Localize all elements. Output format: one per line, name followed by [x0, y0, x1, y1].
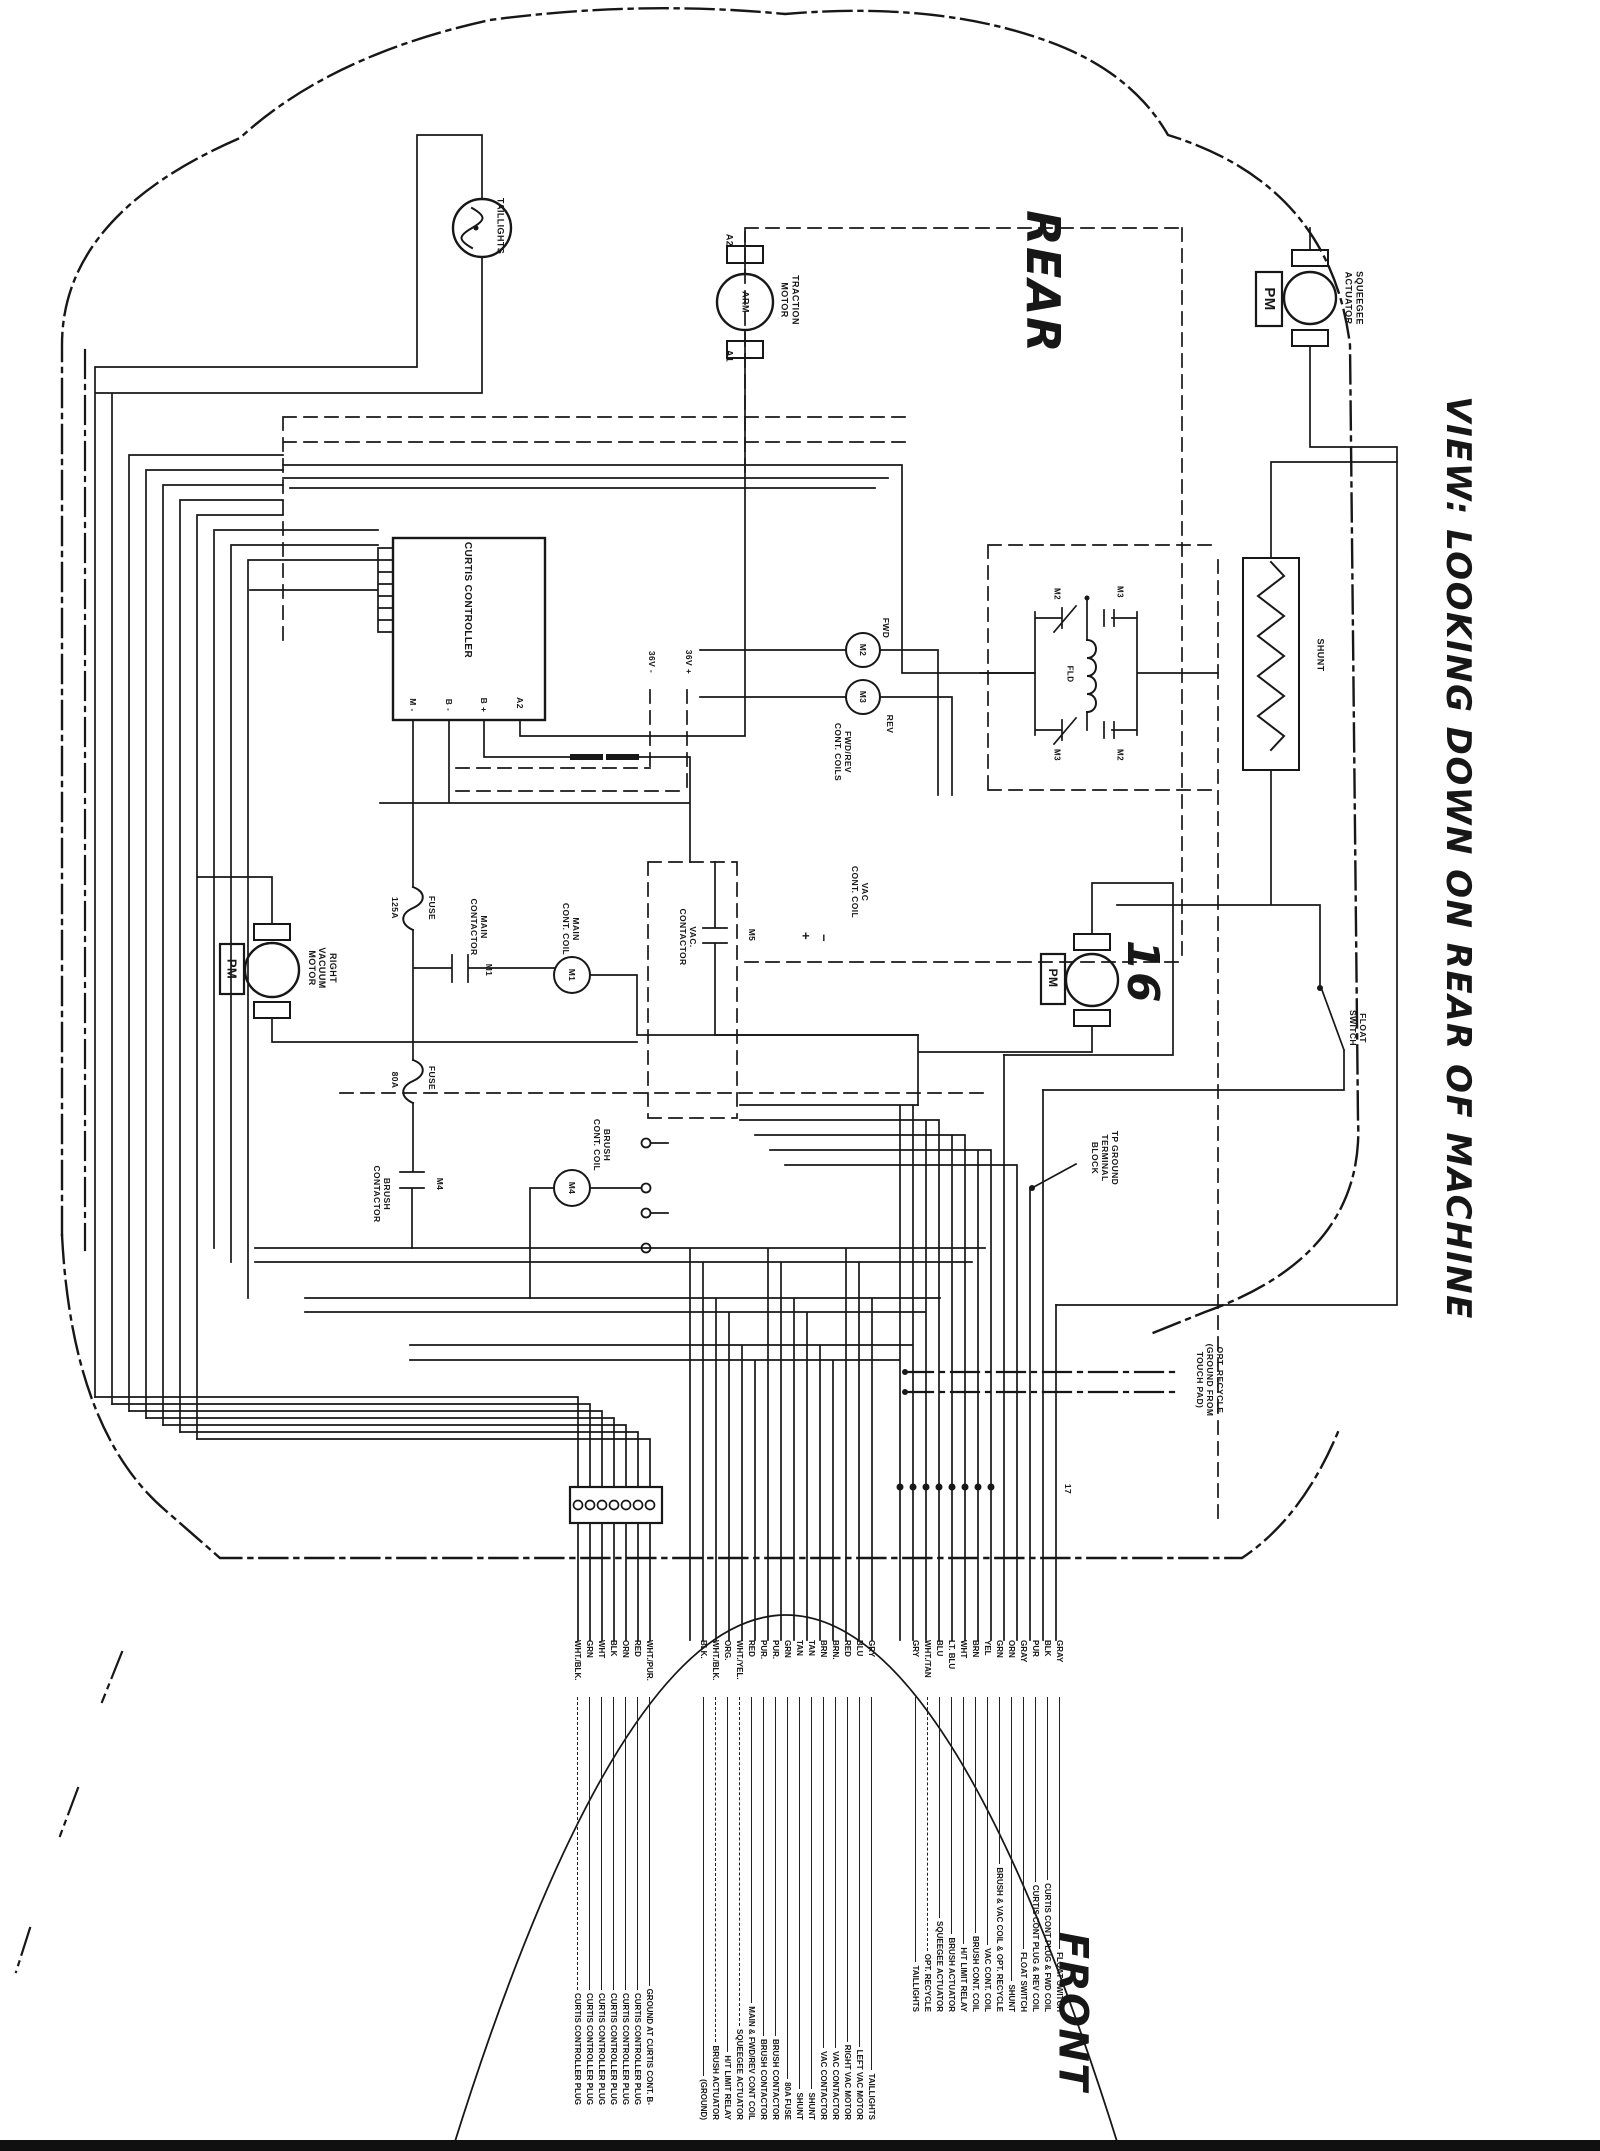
wire-label-row: BLKCURTIS CONT PLUG & FWD COIL	[1042, 1640, 1054, 2012]
wire-target: GROUND AT CURTIS CONT. B-	[646, 1989, 655, 2105]
wire-target: VAC CONT. COIL	[984, 1948, 993, 2012]
wire-label-row: BRN.VAC CONTACTOR	[830, 1640, 842, 2120]
label-m1-contact: M1	[484, 964, 494, 977]
wire-target: BRUSH ACTUATOR	[948, 1937, 957, 2012]
wire-color: GRN	[784, 1640, 793, 1694]
wire-leader-line	[788, 1697, 789, 2079]
wire-target: H/T LIMIT RELAY	[960, 1947, 969, 2012]
splice-dots	[897, 1484, 995, 1491]
wire-color: ORN	[1008, 1640, 1017, 1694]
wire-color: WHT./BLK.	[574, 1640, 583, 1694]
wire-leader-line	[836, 1697, 837, 2048]
label-m2-coil: M2	[858, 644, 868, 657]
label-right-vacuum-motor: RIGHT VACUUM MOTOR	[306, 947, 338, 988]
wire-leader-line	[1048, 1697, 1049, 1880]
shunt-resistor	[1258, 562, 1284, 750]
label-m1-coil: M1	[567, 969, 577, 982]
wire-label-row: ORNCURTIS CONTROLLER PLUG	[620, 1640, 632, 2105]
wire-target: CURTIS CONTROLLER PLUG	[634, 1993, 643, 2105]
label-fuse80: FUSE	[427, 1066, 437, 1090]
label-squeegee-actuator: SQUEEGEE ACTUATOR	[1343, 271, 1364, 325]
wire-target: BRUSH CONT. COIL	[972, 1936, 981, 2012]
label-m3-contact-bl: M3	[1052, 749, 1061, 761]
wire-target: FLOAT SWITCH	[1020, 1952, 1029, 2012]
wire-label-list-curtis-plug: WHT./PUR.GROUND AT CURTIS CONT. B-REDCUR…	[572, 1640, 656, 2105]
taillight-filament	[462, 208, 483, 248]
wire-color: WHT./PUR.	[646, 1640, 655, 1694]
wiring-diagram-page: TAILLIGHTSA2ARMA1TRACTION MOTORREARPMSQU…	[0, 0, 1600, 2151]
wire-label-row: GRNCURTIS CONTROLLER PLUG	[584, 1640, 596, 2105]
wire-color: PUR	[1032, 1640, 1041, 1694]
wire-color: BLU	[856, 1640, 865, 1694]
wire-color: RED	[748, 1640, 757, 1694]
dashed-enclosures	[283, 228, 1218, 1525]
wire-color: ORN	[622, 1640, 631, 1694]
wire-label-row: PURCURTIS CONT PLUG & REV COIL	[1030, 1640, 1042, 2012]
wire-color: GRAY	[1020, 1640, 1029, 1694]
wire-leader-line	[964, 1697, 965, 1944]
wire-label-row: GRYTAILLIGHTS	[910, 1640, 922, 2012]
wire-leader-line	[716, 1697, 717, 2042]
label-squeegee-pm: PM	[1260, 287, 1278, 310]
wire-leader-line	[800, 1697, 801, 2089]
wire-color: PUR.	[772, 1640, 781, 1694]
wire-label-row: BLK.(GROUND)	[698, 1640, 710, 2120]
wire-label-row: TANSHUNT	[794, 1640, 806, 2120]
machine-outline-top	[62, 8, 1358, 1335]
label-float-switch: FLOAT SWITCH	[1348, 1010, 1368, 1046]
wire-target: SHUNT	[796, 2092, 805, 2120]
squeegee-actuator-motor	[1284, 272, 1336, 324]
label-field-coil: FLD	[1065, 666, 1074, 683]
wire-target: CURTIS CONTROLLER PLUG	[622, 1993, 631, 2105]
wire-color: GRAY	[1056, 1640, 1065, 1694]
wire-leader-line	[952, 1697, 953, 1934]
wire-leader-line	[764, 1697, 765, 2036]
wire-leader-line	[860, 1697, 861, 2047]
wire-leader-line	[1000, 1697, 1001, 1864]
wires-right-side	[530, 462, 1397, 1298]
wire-leader-line	[614, 1697, 615, 1990]
wire-leader-line	[916, 1697, 917, 1962]
wire-target: RIGHT VAC MOTOR	[844, 2045, 853, 2120]
label-m3-coil: M3	[858, 691, 868, 704]
wire-leader-line	[812, 1697, 813, 2089]
wire-leader-line	[704, 1697, 705, 2076]
wire-label-row: BLUSQUEEGEE ACTUATOR	[934, 1640, 946, 2012]
wire-color: WHT./YEL.	[736, 1640, 745, 1694]
wire-color: GRN	[996, 1640, 1005, 1694]
wire-label-row: BRNVAC CONTACTOR	[818, 1640, 830, 2120]
wire-label-row: GRAYFLOAT SWITCH	[1054, 1640, 1066, 2012]
label-m2-contact-tl: M2	[1052, 588, 1061, 600]
wire-color: RED	[634, 1640, 643, 1694]
label-traction-a1: A1	[724, 350, 735, 362]
wire-leader-line	[872, 1697, 873, 2070]
wire-label-row: GRNBRUSH & VAC COIL & OPT. RECYCLE	[994, 1640, 1006, 2012]
label-m2-contact-br: M2	[1115, 749, 1124, 761]
wire-target: LEFT VAC MOTOR	[856, 2050, 865, 2120]
wire-target: TAILLIGHTS	[868, 2073, 877, 2120]
wire-leader-line	[626, 1697, 627, 1990]
label-m4-contact: M4	[435, 1178, 445, 1191]
wire-target: BRUSH ACTUATOR	[712, 2045, 721, 2120]
label-traction-motor: TRACTION MOTOR	[779, 275, 800, 325]
wire-leader-line	[752, 1697, 753, 2003]
label-plus-mark: +	[798, 932, 813, 940]
wire-label-row: WHT./BLK.CURTIS CONTROLLER PLUG	[572, 1640, 584, 2105]
label-shunt: SHUNT	[1315, 639, 1326, 672]
wire-label-row: ORG.H/T LIMIT RELAY	[722, 1640, 734, 2120]
wire-target: CURTIS CONT PLUG & FWD COIL	[1044, 1883, 1053, 2012]
wire-color: WHT	[598, 1640, 607, 1694]
wire-label-row: WHT./YEL.SQUEEGEE ACTUATOR	[734, 1640, 746, 2120]
label-fwd: FWD	[881, 618, 891, 639]
fuse-80a-symbol	[403, 1060, 423, 1103]
wire-color: BLK.	[700, 1640, 709, 1694]
wire-color: GRY	[868, 1640, 877, 1694]
fuse-125a-symbol	[403, 887, 423, 930]
label-aux-neg: 36V -	[647, 651, 657, 673]
wire-label-row: REDRIGHT VAC MOTOR	[842, 1640, 854, 2120]
label-term-a2: A2	[515, 697, 525, 709]
wire-target: CURTIS CONT PLUG & REV COIL	[1032, 1885, 1041, 2012]
wire-color: BRN	[972, 1640, 981, 1694]
wire-target: BRUSH CONTACTOR	[760, 2039, 769, 2120]
wire-leader-line	[976, 1697, 977, 1933]
wire-target: 80A FUSE	[784, 2082, 793, 2120]
label-curtis-controller: CURTIS CONTROLLER	[461, 542, 473, 658]
scan-edge-bar	[0, 2140, 1600, 2151]
wire-label-row: GRAYFLOAT SWITCH	[1018, 1640, 1030, 2012]
wire-target: CURTIS CONTROLLER PLUG	[598, 1993, 607, 2105]
wire-label-row: WHT./TANOPT. RECYCLE	[922, 1640, 934, 2012]
wire-label-list-component-bundle: GRYTAILLIGHTSBLULEFT VAC MOTORREDRIGHT V…	[698, 1640, 878, 2120]
wire-color: WHT./TAN	[924, 1640, 933, 1694]
label-main-cont-coil: MAIN CONT. COIL	[561, 903, 581, 955]
wire-label-row: REDMAIN & FWD/REV CONT COIL	[746, 1640, 758, 2120]
shunt-box	[1243, 558, 1299, 770]
wire-leader-line	[940, 1697, 941, 1918]
label-term-b-plus: B +	[479, 698, 489, 713]
label-traction-arm: ARM	[740, 291, 751, 313]
wire-target: CURTIS CONTROLLER PLUG	[586, 1993, 595, 2105]
wire-color: LT. BLU	[948, 1640, 957, 1694]
wire-target: SQUEEGEE ACTUATOR	[736, 2029, 745, 2120]
wire-color: GRN	[586, 1640, 595, 1694]
label-vac-cont-coil: VAC CONT. COIL	[850, 866, 870, 918]
wire-target: VAC CONTACTOR	[832, 2051, 841, 2120]
wire-label-list-accessory-bundle: GRAYFLOAT SWITCHBLKCURTIS CONT PLUG & FW…	[910, 1640, 1066, 2012]
label-handwritten-16: 16	[1116, 940, 1168, 1004]
wire-label-row: LT. BLUBRUSH ACTUATOR	[946, 1640, 958, 2012]
wire-color: BLK	[610, 1640, 619, 1694]
label-pm-left-vac: PM	[1046, 969, 1060, 988]
wire-target: H/T LIMIT RELAY	[724, 2055, 733, 2120]
wire-label-row: WHTCURTIS CONTROLLER PLUG	[596, 1640, 608, 2105]
wire-target: CURTIS CONTROLLER PLUG	[610, 1993, 619, 2105]
wire-target: OPT. RECYCLE	[924, 1954, 933, 2012]
label-fuse125-amp: 125A	[390, 897, 400, 919]
label-vac-contactor: VAC. CONTACTOR	[678, 908, 698, 965]
wire-leader-line	[928, 1697, 929, 1951]
wire-target: SQUEEGEE ACTUATOR	[936, 1921, 945, 2012]
wire-target: (GROUND)	[700, 2079, 709, 2120]
label-view-note: VIEW: LOOKING DOWN ON REAR OF MACHINE	[1438, 396, 1478, 1320]
wire-target: FLOAT SWITCH	[1056, 1952, 1065, 2012]
label-pm-right-vac: PM	[224, 959, 239, 979]
wire-label-row: WHT./PUR.GROUND AT CURTIS CONT. B-	[644, 1640, 656, 2105]
wire-target: VAC CONTACTOR	[820, 2051, 829, 2120]
label-brush-cont-coil: BRUSH CONT. COIL	[592, 1119, 612, 1171]
wire-leader-line	[848, 1697, 849, 2042]
wire-color: TAN	[796, 1640, 805, 1694]
wire-label-row: WHT./BLK.BRUSH ACTUATOR	[710, 1640, 722, 2120]
wire-leader-line	[590, 1697, 591, 1990]
wire-color: ORG.	[724, 1640, 733, 1694]
wire-label-row: BLKCURTIS CONTROLLER PLUG	[608, 1640, 620, 2105]
label-term-b-minus: B -	[444, 699, 454, 712]
label-tp-ground-block: TP GROUND TERMINAL BLOCK	[1090, 1131, 1120, 1185]
wire-target: SHUNT	[1008, 1984, 1017, 2012]
label-fuse125: FUSE	[427, 896, 437, 920]
wire-color: YEL	[984, 1640, 993, 1694]
wire-color: PUR.	[760, 1640, 769, 1694]
wire-leader-line	[650, 1697, 651, 1986]
wire-leader-line	[776, 1697, 777, 2036]
wire-leader-line	[578, 1697, 579, 1990]
wire-label-row: TANSHUNT	[806, 1640, 818, 2120]
wire-leader-line	[824, 1697, 825, 2048]
wire-color: RED	[844, 1640, 853, 1694]
wire-label-row: WHTH/T LIMIT RELAY	[958, 1640, 970, 2012]
wire-label-row: GRN80A FUSE	[782, 1640, 794, 2120]
field-coil-symbol	[1087, 640, 1096, 712]
wire-label-row: PUR.BRUSH CONTACTOR	[770, 1640, 782, 2120]
wire-leader-line	[1036, 1697, 1037, 1882]
label-aux-pos: 36V +	[684, 650, 694, 674]
wire-leader-line	[740, 1697, 741, 2026]
wire-color: BLK	[1044, 1640, 1053, 1694]
label-rear: REAR	[1016, 210, 1070, 354]
harness-connector	[570, 1487, 662, 1523]
wire-leader-line	[1060, 1697, 1061, 1949]
wire-target: SHUNT	[808, 2092, 817, 2120]
wire-color: GRY	[912, 1640, 921, 1694]
label-rev: REV	[885, 715, 895, 734]
wire-target: BRUSH CONTACTOR	[772, 2039, 781, 2120]
label-minus-mark: −	[816, 934, 831, 942]
label-traction-a2: A2	[724, 234, 735, 246]
wire-leader-line	[988, 1697, 989, 1945]
wire-target: MAIN & FWD/REV CONT COIL	[748, 2006, 757, 2120]
label-brush-contactor: BRUSH CONTACTOR	[372, 1165, 392, 1222]
wire-color: WHT./BLK.	[712, 1640, 721, 1694]
wire-target: TAILLIGHTS	[912, 1965, 921, 2012]
label-m3-contact-tr: M3	[1115, 586, 1124, 598]
wire-color: BRN	[820, 1640, 829, 1694]
label-main-contactor: MAIN CONTACTOR	[469, 898, 489, 955]
label-pin-17: 17	[1063, 1484, 1073, 1494]
wire-leader-line	[638, 1697, 639, 1990]
wire-target: CURTIS CONTROLLER PLUG	[574, 1993, 583, 2105]
label-opt-recycle-note: OPT. RECYCLE (GROUND FROM TOUCH PAD)	[1195, 1344, 1225, 1417]
wire-label-row: BRNBRUSH CONT. COIL	[970, 1640, 982, 2012]
label-fuse80-amp: 80A	[390, 1072, 400, 1089]
wire-target: BRUSH & VAC COIL & OPT. RECYCLE	[996, 1867, 1005, 2012]
wire-label-row: GRYTAILLIGHTS	[866, 1640, 878, 2120]
wire-color: BLU	[936, 1640, 945, 1694]
wire-color: TAN	[808, 1640, 817, 1694]
wire-label-row: YELVAC CONT. COIL	[982, 1640, 994, 2012]
wire-color: WHT	[960, 1640, 969, 1694]
wire-label-row: ORNSHUNT	[1006, 1640, 1018, 2012]
right-vacuum-motor-symbol	[245, 943, 299, 997]
wire-leader-line	[602, 1697, 603, 1990]
wire-leader-line	[1012, 1697, 1013, 1981]
label-m4-coil: M4	[567, 1182, 577, 1195]
taillight-dot	[474, 226, 479, 231]
label-taillights: TAILLIGHTS	[495, 198, 506, 254]
label-term-m-minus: M -	[408, 698, 418, 711]
wire-label-row: BLULEFT VAC MOTOR	[854, 1640, 866, 2120]
wire-label-row: REDCURTIS CONTROLLER PLUG	[632, 1640, 644, 2105]
label-m5-contact: M5	[747, 929, 757, 942]
wire-color: BRN.	[832, 1640, 841, 1694]
wires-bottom-distribution	[95, 1055, 1056, 1640]
wire-leader-line	[728, 1697, 729, 2052]
label-fwdrev-coils: FWD/REV CONT. COILS	[833, 723, 853, 781]
wire-label-row: PUR.BRUSH CONTACTOR	[758, 1640, 770, 2120]
wire-leader-line	[1024, 1697, 1025, 1949]
